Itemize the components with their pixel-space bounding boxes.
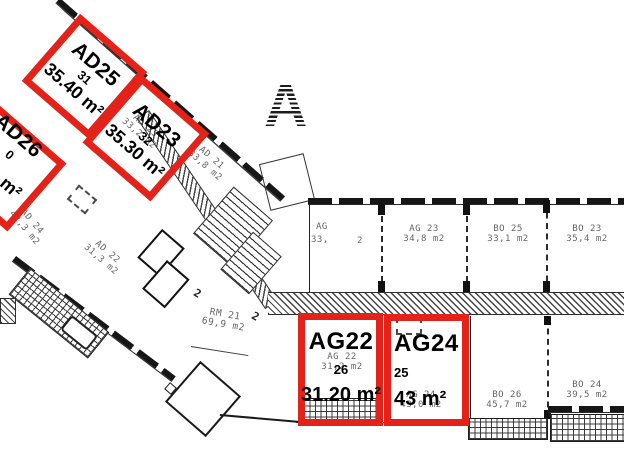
wall-cap [463,281,470,292]
room-label-ag21-area-tail: 2 [357,236,363,246]
partition-bottom-1 [547,318,549,418]
room-label-ad22: AD 2231,3 m2 [76,230,131,282]
wall-cap [378,204,385,215]
wall-bay-to-ag22 [220,414,302,423]
room-label-ag21-area: 33, [311,235,329,245]
balcony-grid-bo26 [468,418,548,440]
wall-cap [543,281,550,292]
unit-number: 26 [334,362,348,377]
section-marker-a: A [264,76,316,140]
wall-south-bo24 [548,406,624,413]
room-label-bo23: BO 2335,4 m2 [556,224,618,244]
room-label-bo25: BO 2533,1 m2 [478,224,538,244]
wall-cap [463,204,470,215]
wall-cap [544,316,551,325]
whiteout-patch [336,212,356,292]
partition-top-2 [466,206,468,292]
unit-label-ag22: AG22 26 31.20 m² [300,330,382,406]
balcony-grid-west [9,268,110,359]
unit-number: 25 [394,365,408,380]
wall-ag24-bo26 [470,316,471,424]
room-label-ag21-code: AG [316,222,328,232]
unit-code: AG24 [394,332,459,356]
corridor-hatch-band [268,292,624,315]
dimension-line-rm21 [191,346,248,356]
room-label-rm21: RM 2169,9 m2 [191,305,258,336]
room-label-ag23: AG 2334,8 m2 [394,224,454,244]
wall-stub-left-edge [0,298,16,324]
section-marker-letter: A [264,72,307,139]
balcony-door [60,315,98,351]
dimension-digit: 2 [191,286,203,301]
unit-area: 31.20 m² [301,385,381,406]
balcony-outline-center [259,153,315,211]
unit-area: 43 m² [394,389,446,410]
partition-top-3 [546,202,548,292]
dimension-digit: 2 [249,309,261,324]
floor-plan-canvas: A AD 2133,8 m2 AD 2442,3 m2 AD 2231,3 m2… [0,0,624,468]
unit-code: AG22 [309,330,374,354]
wall-cap [378,281,385,292]
partition-top-1 [381,206,383,292]
wall-room-left [309,204,310,292]
bay-room [165,361,241,437]
room-label-bo24: BO 2439,5 m2 [556,380,618,400]
room-label-bo26: BO 2645,7 m2 [476,390,538,410]
balcony-grid-bo24 [550,414,624,442]
wall-cap [543,200,550,213]
column-marker-icon [67,185,98,215]
unit-label-ag24: AG24 25 43 m² [390,332,470,410]
